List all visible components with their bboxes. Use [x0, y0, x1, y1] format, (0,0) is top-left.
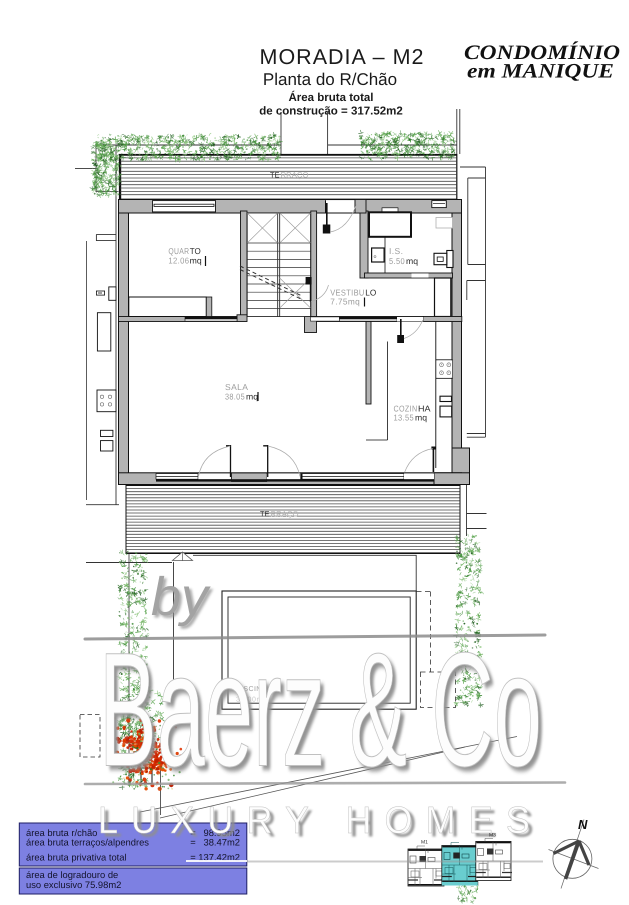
svg-text:RRAÇO: RRAÇO — [281, 171, 309, 180]
svg-text:38.05: 38.05 — [225, 392, 245, 402]
svg-text:M1: M1 — [421, 840, 428, 846]
svg-text:área bruta privativa total: área bruta privativa total — [26, 852, 127, 863]
svg-text:mq: mq — [406, 256, 418, 266]
svg-text:mq: mq — [190, 256, 202, 266]
svg-text:13.55: 13.55 — [394, 413, 415, 423]
svg-text:I.S.: I.S. — [389, 246, 403, 256]
svg-text:TE: TE — [270, 171, 280, 180]
svg-text:7.75mq: 7.75mq — [330, 297, 360, 307]
svg-text:LO: LO — [365, 287, 376, 297]
svg-text:LUXURY HOMES: LUXURY HOMES — [98, 800, 543, 842]
svg-text:Área bruta total: Área bruta total — [289, 90, 374, 104]
svg-text:em MANIQUE: em MANIQUE — [467, 61, 614, 83]
svg-text:SALA: SALA — [225, 382, 248, 392]
svg-text:M3: M3 — [489, 833, 496, 839]
svg-text:RRAÇO: RRAÇO — [271, 510, 299, 519]
svg-text:by: by — [151, 567, 211, 627]
svg-text:QUAR: QUAR — [168, 246, 189, 256]
svg-text:N: N — [578, 817, 588, 832]
svg-text:TE: TE — [260, 510, 270, 519]
svg-text:12.06: 12.06 — [168, 256, 189, 266]
svg-text:Planta do R/Chão: Planta do R/Chão — [263, 70, 397, 89]
svg-text:uso exclusivo 75.98m2: uso exclusivo 75.98m2 — [26, 879, 121, 890]
svg-text:5.50: 5.50 — [389, 256, 405, 266]
svg-text:TO: TO — [190, 246, 201, 256]
svg-text:MORADIA – M2: MORADIA – M2 — [260, 45, 425, 69]
svg-text:mq: mq — [246, 392, 258, 402]
svg-text:mq: mq — [415, 413, 427, 423]
svg-text:Baerz & Co: Baerz & Co — [99, 619, 542, 800]
